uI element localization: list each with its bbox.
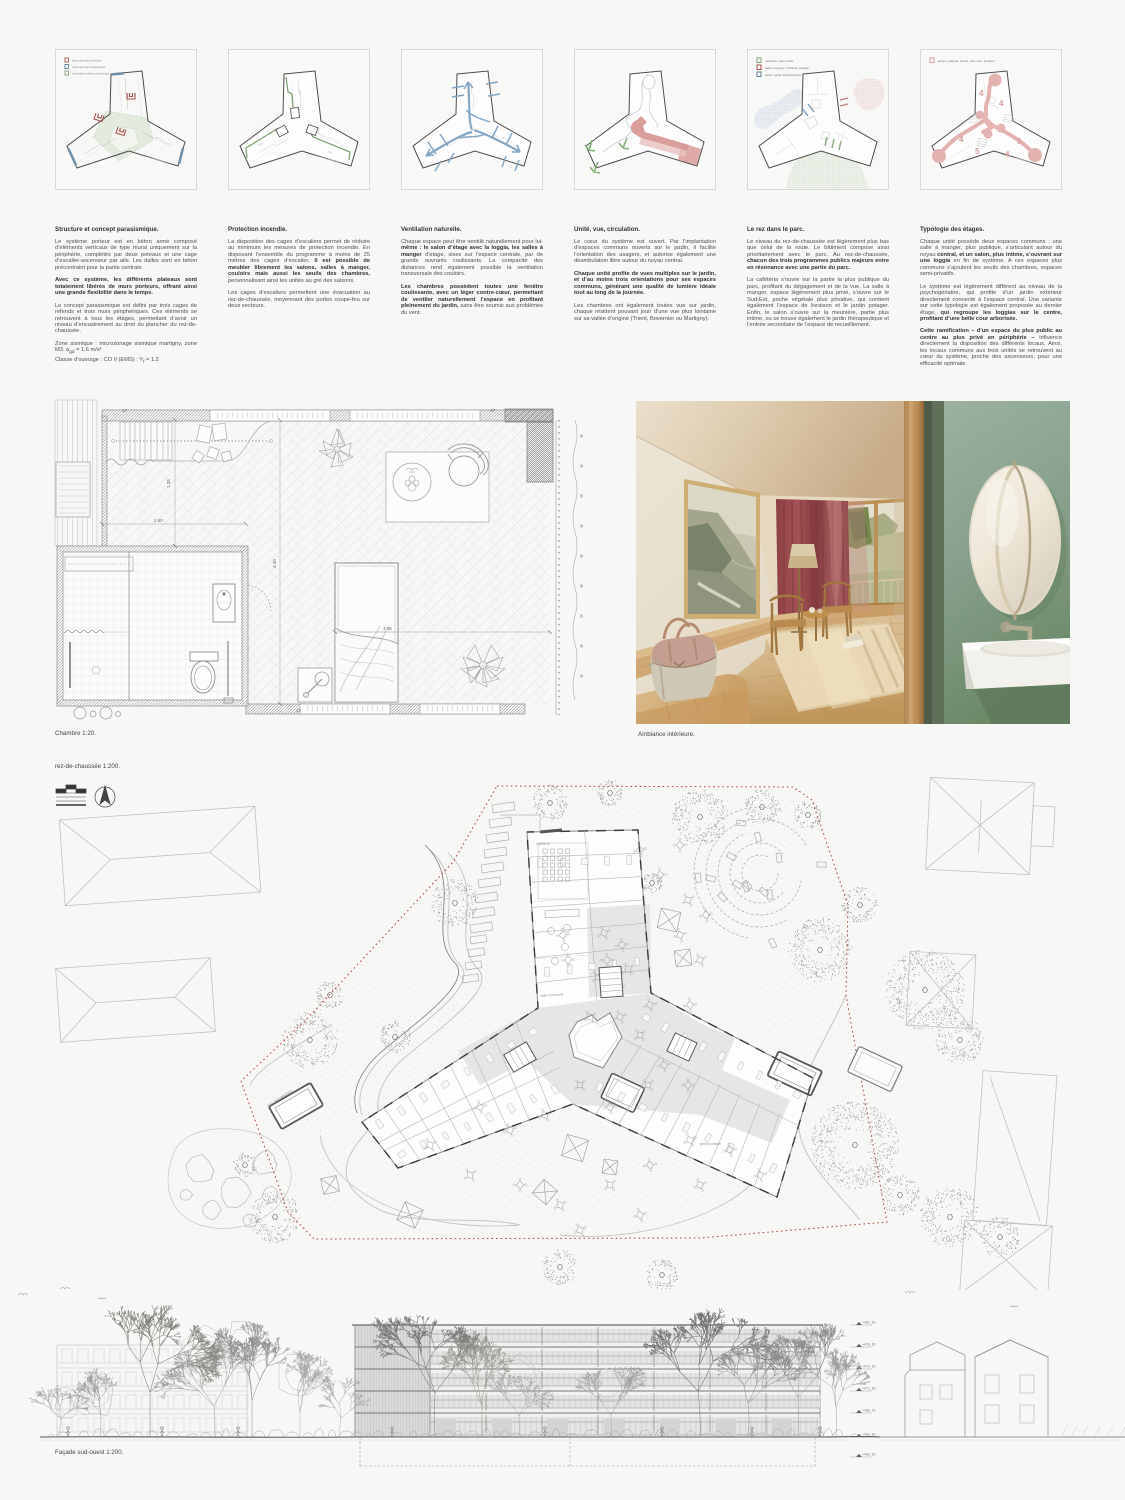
svg-text:17: 17 [122,408,128,413]
svg-text:refend sismique périphérique: refend sismique périphérique [72,65,106,69]
svg-text:4: 4 [999,99,1004,108]
svg-text:+475.10: +475.10 [862,1365,875,1369]
svg-text:25m: 25m [298,90,303,96]
svg-text:5: 5 [1017,137,1022,146]
svg-text:+465.50: +465.50 [862,1433,875,1437]
svg-text:refend sismique intérieure: refend sismique intérieure [72,59,102,63]
svg-text:17: 17 [296,708,302,713]
svg-text:+481.50: +481.50 [862,1321,875,1325]
svg-text:4.40: 4.40 [272,559,277,568]
svg-text:5: 5 [975,147,980,156]
svg-text:2.50: 2.50 [154,518,163,523]
svg-text:4: 4 [979,89,984,98]
svg-text:+462.20: +462.20 [862,1453,875,1457]
svg-text:17: 17 [490,408,496,413]
svg-text:4: 4 [959,135,964,144]
svg-text:jardin potager: jardin potager [699,1142,722,1146]
svg-text:1.26: 1.26 [166,479,171,488]
svg-text:accès, matériel, entrée, hall,: accès, matériel, entrée, hall, cour, tam… [938,59,995,63]
svg-text:salon / jardin thérapeutique: salon / jardin thérapeutique [765,73,802,77]
svg-text:4: 4 [1005,150,1010,159]
svg-text:+478.30: +478.30 [862,1343,875,1347]
svg-text:+468.70: +468.70 [862,1409,875,1413]
svg-text:cafétéria / parc public: cafétéria / parc public [765,59,794,63]
svg-text:cafétéria: cafétéria [536,842,549,846]
svg-text:zone dalle en béton précontrai: zone dalle en béton précontraint [72,72,109,76]
svg-text:+471.90: +471.90 [862,1387,875,1391]
svg-text:3.96: 3.96 [383,626,392,631]
svg-text:salle à manger / livraison pot: salle à manger / livraison potager [765,66,809,70]
